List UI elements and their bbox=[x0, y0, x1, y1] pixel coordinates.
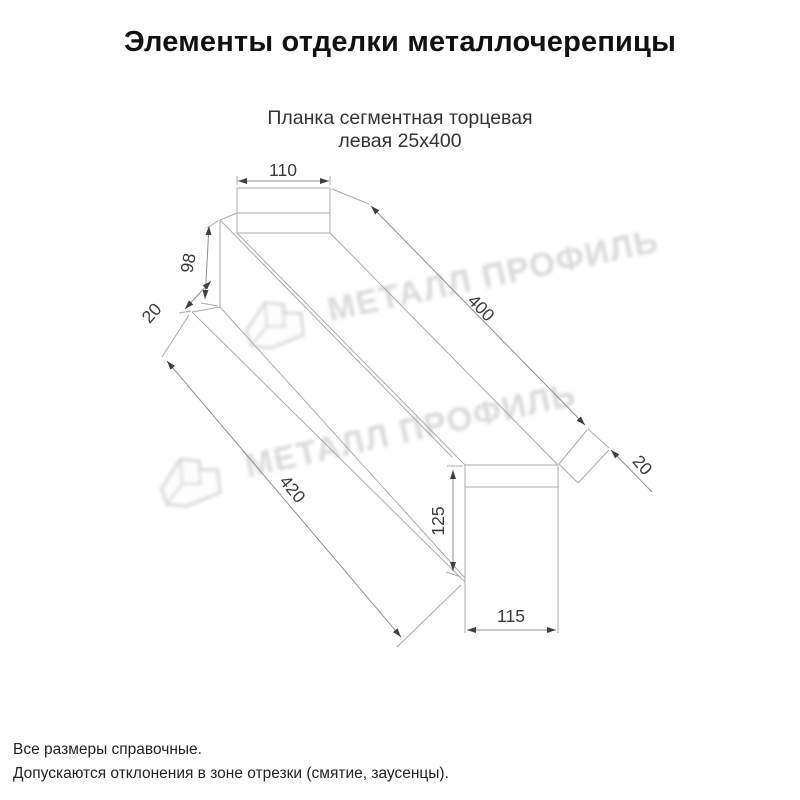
dim-line-20-left bbox=[185, 281, 211, 309]
left-bottom-fold-edge bbox=[192, 307, 220, 312]
strip-edge-2 bbox=[330, 233, 558, 465]
dim-line-98 bbox=[205, 226, 209, 299]
dim-label-420: 420 bbox=[276, 472, 310, 507]
dim-label-20-left: 20 bbox=[138, 299, 166, 327]
footnote-line1: Все размеры справочные. bbox=[13, 738, 449, 762]
dim-label-115: 115 bbox=[497, 606, 525, 626]
part-outline bbox=[192, 188, 609, 633]
ext-420-bottom bbox=[397, 585, 461, 647]
technical-drawing: 110 98 20 400 420 125 115 20 bbox=[0, 0, 800, 800]
strip-edge-5 bbox=[192, 312, 465, 582]
footnote-line2: Допускаются отклонения в зоне отрезки (с… bbox=[13, 762, 449, 786]
ext-98-bottom bbox=[201, 303, 218, 306]
right-flap-edge-3 bbox=[578, 450, 609, 483]
strip-edge-4 bbox=[220, 307, 465, 578]
dim-label-20-right: 20 bbox=[629, 451, 657, 479]
dim-label-400: 400 bbox=[464, 290, 499, 325]
right-flap-edge-4 bbox=[588, 429, 609, 448]
strip-edge-3 bbox=[220, 220, 452, 457]
dim-label-125: 125 bbox=[428, 506, 448, 535]
dim-label-110: 110 bbox=[269, 160, 297, 180]
ext-400-top bbox=[332, 189, 369, 204]
top-end-cap bbox=[237, 188, 330, 233]
right-flap-edge-1 bbox=[559, 430, 587, 464]
dim-label-98: 98 bbox=[177, 252, 200, 275]
footnotes: Все размеры справочные. Допускаются откл… bbox=[13, 738, 449, 785]
right-flap-edge-2 bbox=[559, 464, 578, 483]
ext-420-top bbox=[162, 315, 189, 357]
ext-20-left bbox=[179, 311, 191, 313]
left-top-fold-edge bbox=[220, 213, 237, 220]
dimension-labels: 110 98 20 400 420 125 115 20 bbox=[138, 160, 657, 626]
ext-125-bottom bbox=[446, 572, 461, 577]
extension-lines bbox=[162, 176, 463, 647]
